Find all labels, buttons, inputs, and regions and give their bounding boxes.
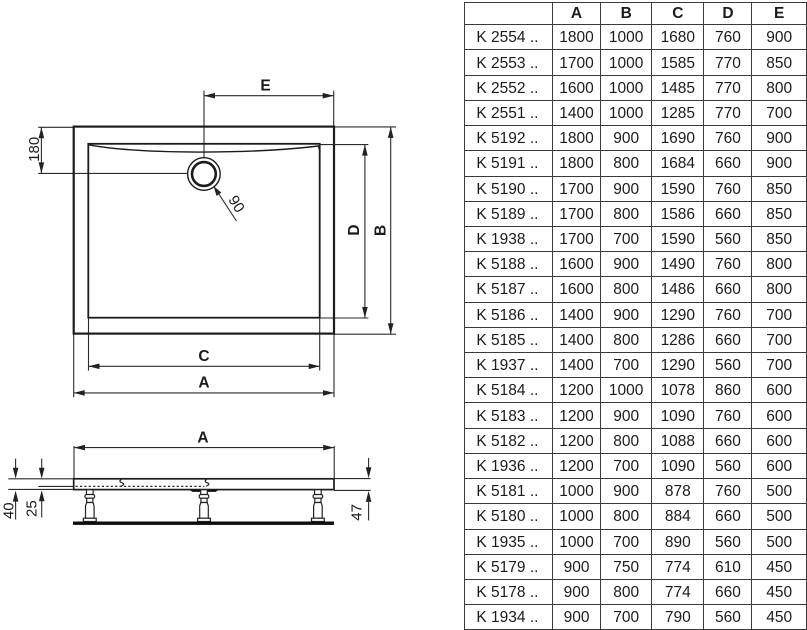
svg-text:E: E (260, 77, 270, 94)
svg-text:90: 90 (225, 193, 248, 216)
svg-text:B: B (372, 225, 389, 236)
svg-text:A: A (198, 375, 209, 392)
svg-text:25: 25 (23, 500, 40, 517)
svg-text:D: D (346, 224, 363, 235)
svg-text:47: 47 (348, 504, 365, 521)
svg-text:180: 180 (26, 137, 43, 162)
svg-text:40: 40 (1, 502, 18, 519)
svg-text:A: A (197, 430, 208, 447)
svg-text:C: C (198, 348, 209, 365)
